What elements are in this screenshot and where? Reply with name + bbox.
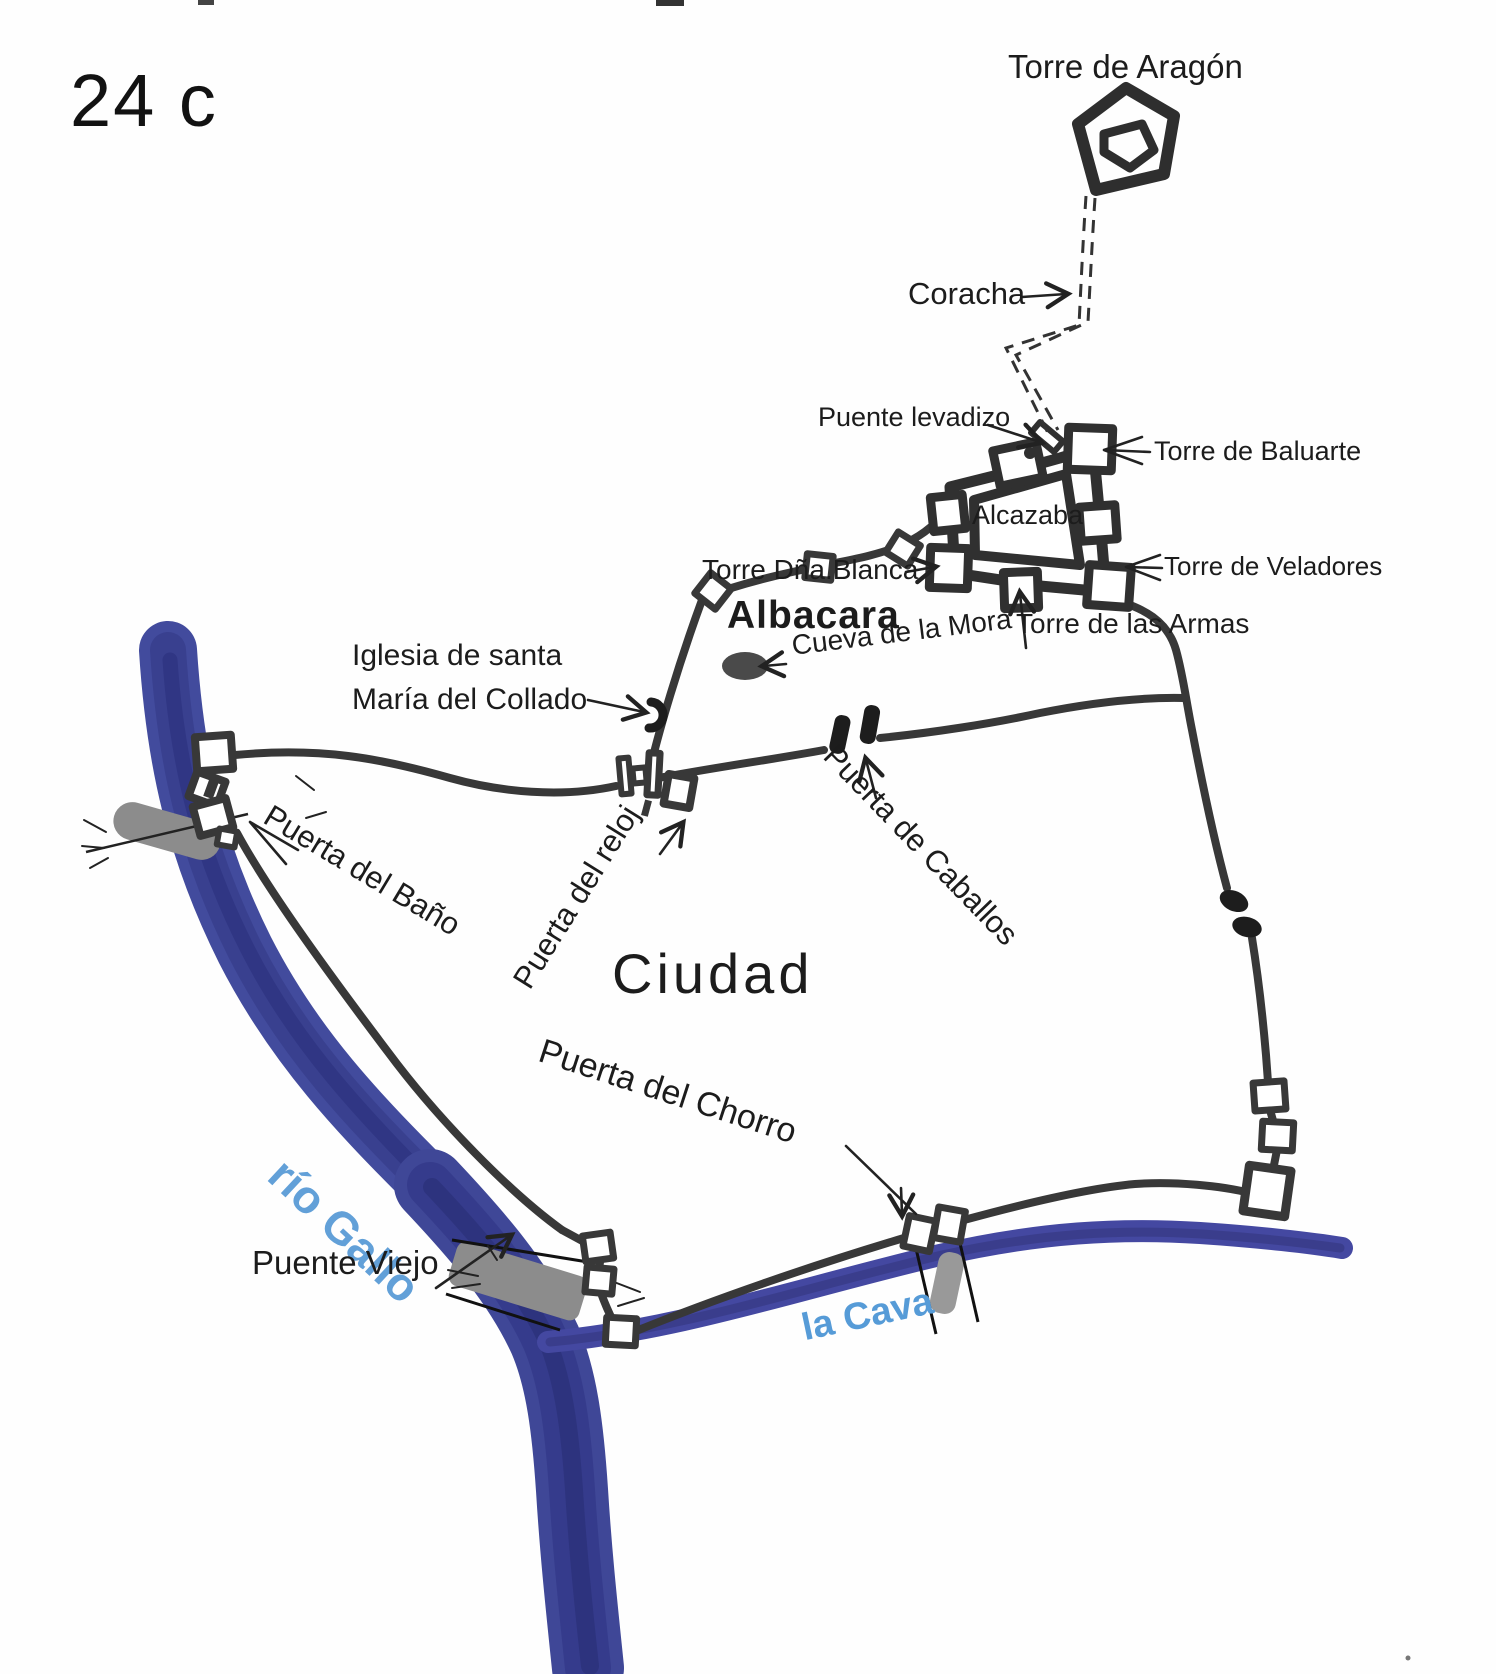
torre-de-veladores-label: Torre de Veladores — [1164, 552, 1382, 582]
torre-de-aragon-tower — [1078, 88, 1174, 190]
coracha-dashed-line — [1006, 196, 1095, 437]
figure-label: 24 c — [70, 58, 218, 143]
torre-de-baluarte-label: Torre de Baluarte — [1154, 436, 1361, 467]
map-drawing — [0, 0, 1496, 1674]
torre-de-las-armas-label: Torre de las Armas — [1016, 608, 1249, 640]
coracha-arrow — [1022, 294, 1066, 297]
north-wall — [235, 752, 616, 792]
puente-levadizo-label: Puente levadizo — [818, 402, 1010, 433]
south-wall-east — [964, 1183, 1250, 1220]
torre-de-veladores-tower — [1087, 565, 1132, 608]
torre-dna-blanca-label: Torre Dña.Blanca — [702, 554, 918, 586]
iglesia-label: Iglesia de santa María del Collado — [352, 634, 587, 721]
rio-gallo-river — [168, 650, 590, 1668]
puerta-del-chorro-gate — [903, 1207, 965, 1252]
coracha-label: Coracha — [908, 276, 1025, 312]
caballos-wall — [648, 698, 1184, 780]
iglesia-label-line1: Iglesia de santa — [352, 634, 587, 678]
alcazaba-west-tower — [930, 494, 965, 531]
puerta-del-chorro-arrow — [846, 1146, 916, 1214]
iglesia-church-icon — [649, 702, 663, 728]
iglesia-label-line2: María del Collado — [352, 678, 587, 722]
alcazaba-east-tower — [1079, 505, 1117, 541]
hand-drawn-city-map: 24 c Torre de Aragón Coracha Puente leva… — [0, 0, 1496, 1674]
torre-de-aragon-label: Torre de Aragón — [1008, 48, 1243, 86]
puerta-del-bano-gate — [188, 735, 237, 848]
east-wall-upper — [1107, 598, 1227, 888]
cueva-de-la-mora-symbol — [722, 652, 768, 680]
alcazaba-top-tower — [993, 442, 1044, 486]
puerta-del-reloj-arrow — [660, 824, 682, 854]
puente-viejo-label: Puente Viejo — [252, 1244, 439, 1282]
torre-dna-blanca-tower — [929, 547, 968, 588]
ciudad-label: Ciudad — [612, 942, 813, 1006]
iglesia-arrow — [588, 700, 644, 712]
alcazaba-label: Alcazaba — [972, 500, 1083, 531]
east-wall-gate — [1216, 886, 1264, 941]
scan-artifacts — [198, 0, 1411, 1661]
